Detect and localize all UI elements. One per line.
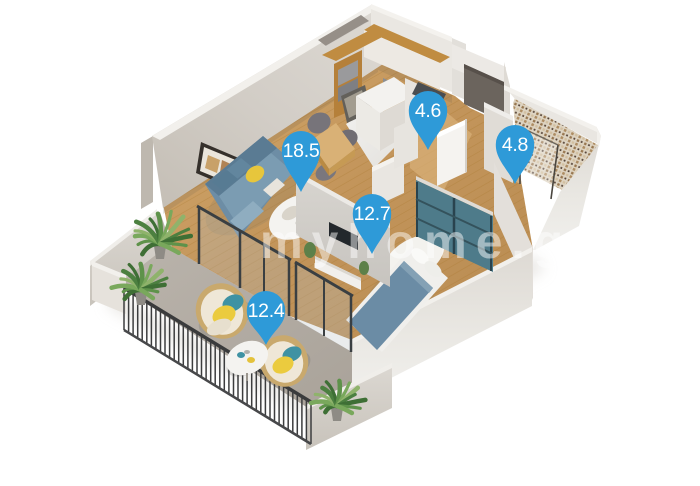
svg-text:12.4: 12.4 bbox=[248, 300, 285, 322]
svg-text:4.6: 4.6 bbox=[415, 100, 441, 122]
svg-text:18.5: 18.5 bbox=[283, 140, 320, 162]
svg-text:4.8: 4.8 bbox=[502, 134, 528, 156]
svg-text:12.7: 12.7 bbox=[354, 203, 391, 225]
svg-text:myhome.ge: myhome.ge bbox=[260, 216, 608, 269]
